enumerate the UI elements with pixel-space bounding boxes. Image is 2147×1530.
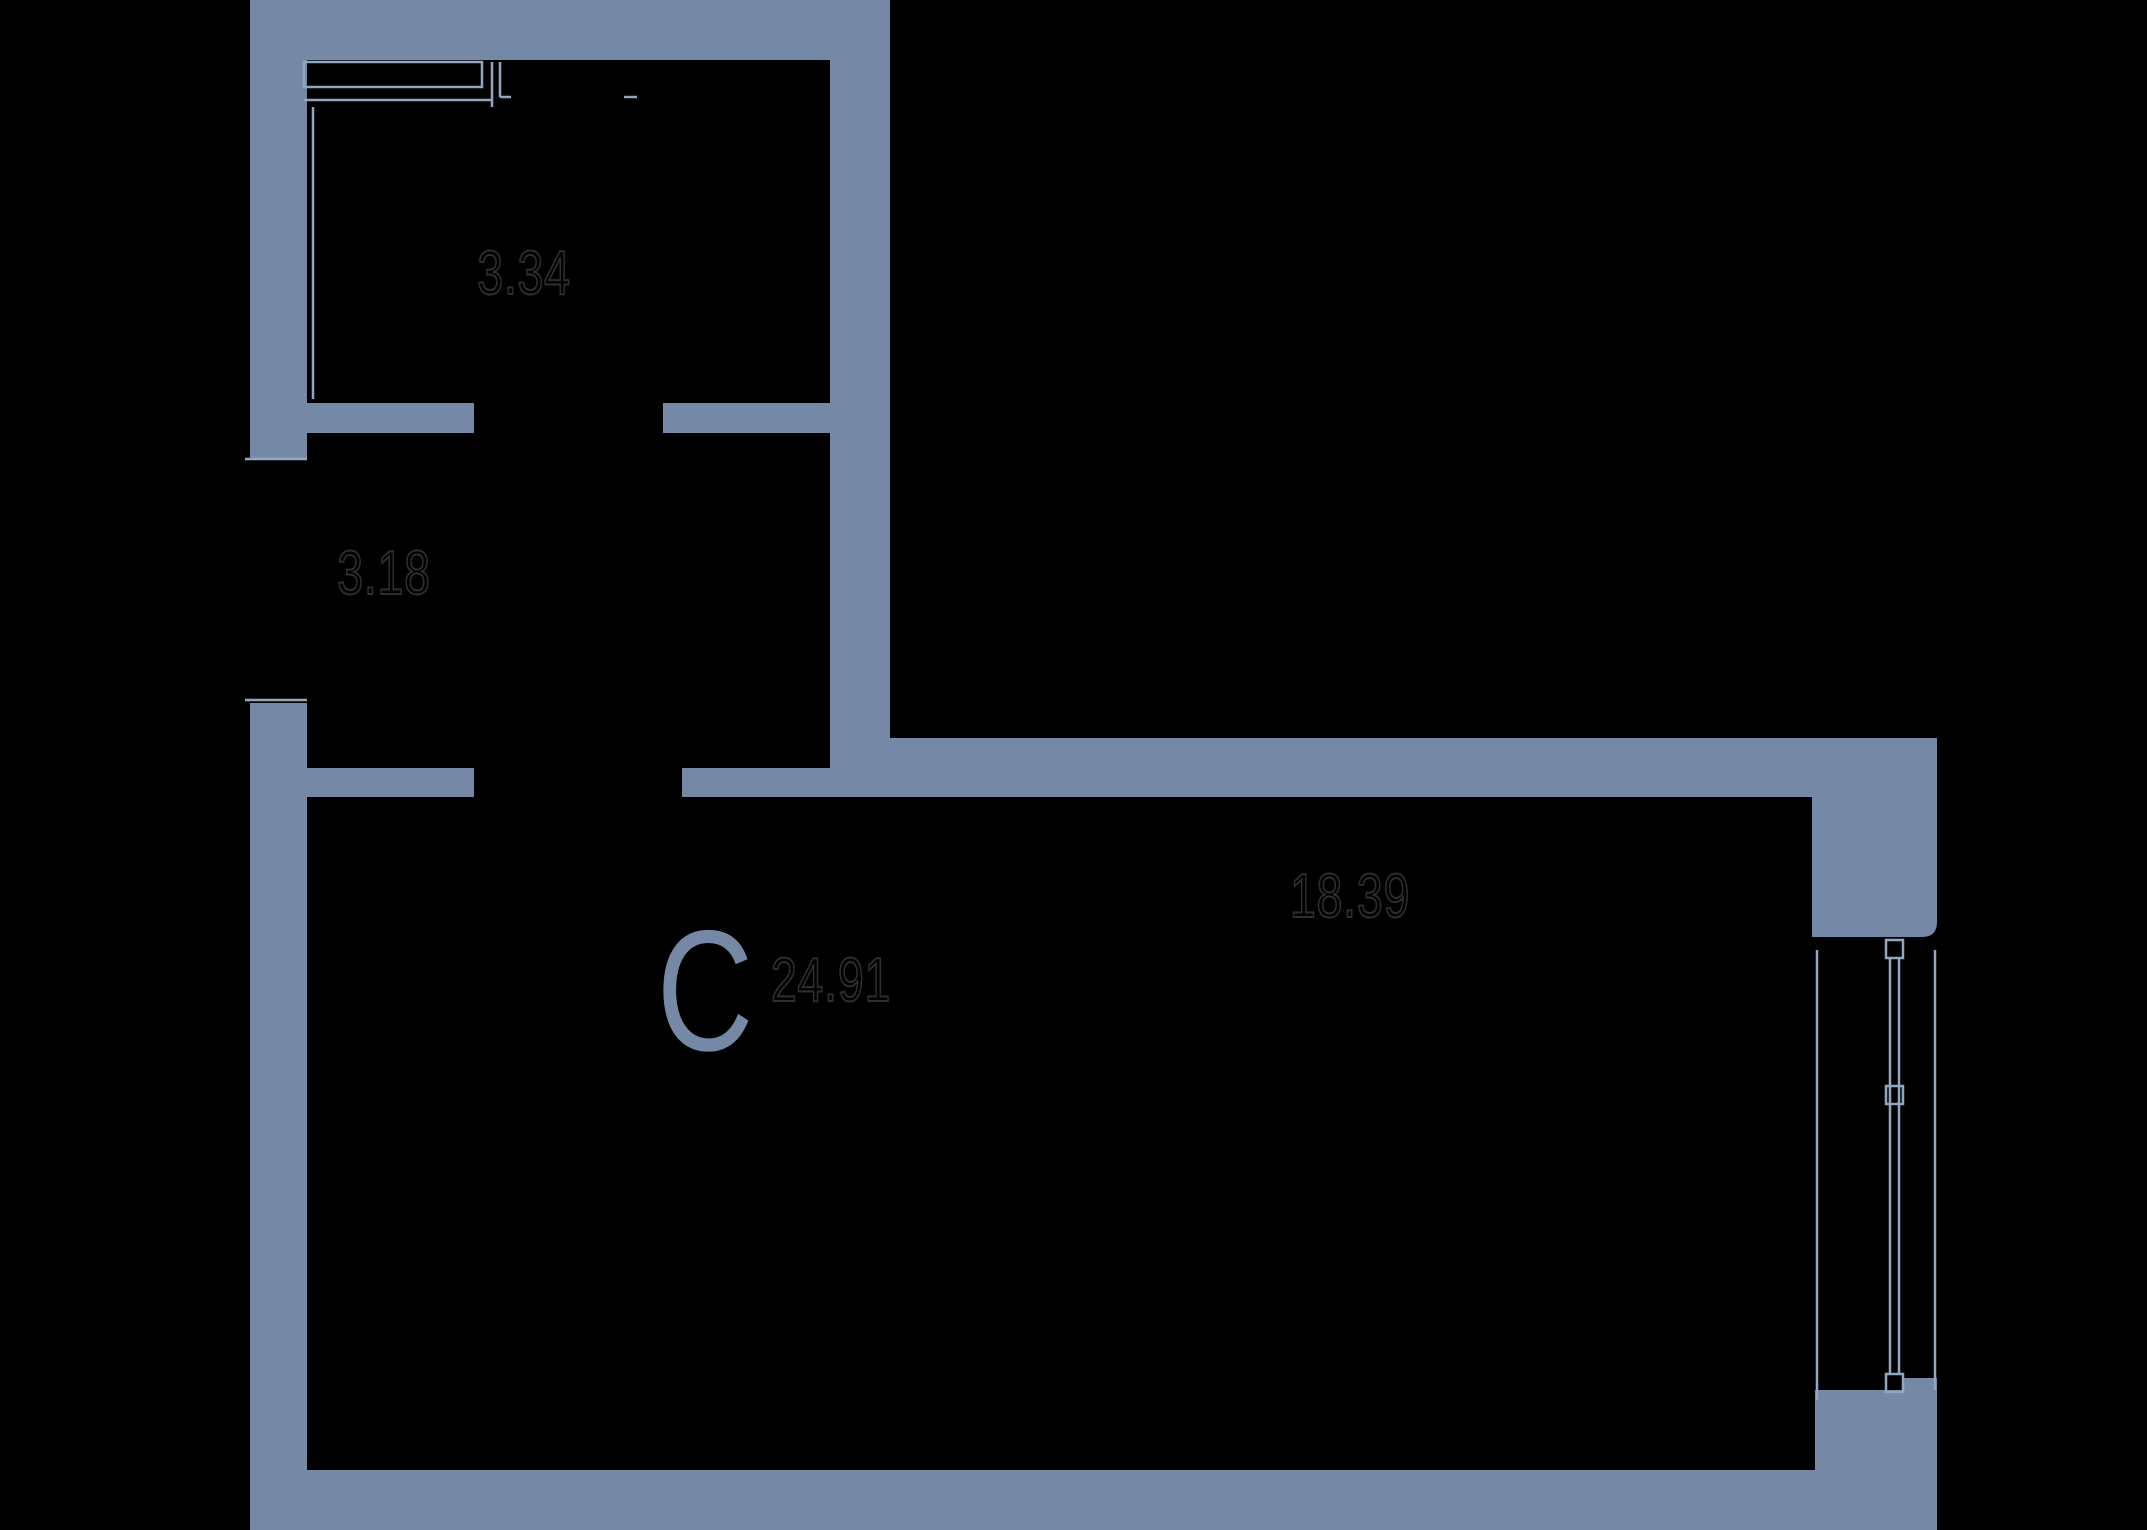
- partition-main-room-right-stub: [682, 768, 890, 797]
- right-window-sash-top: [1886, 940, 1903, 958]
- wall-window-pier-bottom: [1815, 1390, 1937, 1530]
- wall-window-pier-step: [1903, 1378, 1937, 1398]
- wall-window-pier-top: [1812, 797, 1937, 937]
- area-label-upper-room: 3.34: [477, 243, 571, 305]
- right-window-sash-bottom: [1886, 1374, 1903, 1392]
- floor-plan-drawing: [0, 0, 2147, 1530]
- floor-plan: 3.34 3.18 18.39 C 24.91: [0, 0, 2147, 1530]
- partition-main-room-left-stub: [307, 768, 474, 797]
- area-label-total: 24.91: [771, 950, 891, 1012]
- wall-upper-room-right: [830, 0, 890, 768]
- partition-upper-room-left-stub: [307, 403, 474, 433]
- wall-bottom: [250, 1470, 1815, 1530]
- wall-main-room-top: [890, 738, 1937, 797]
- wall-top: [250, 0, 890, 60]
- section-letter: C: [657, 905, 754, 1077]
- upper-window-frame: [304, 62, 482, 87]
- wall-left-upper: [250, 0, 307, 458]
- area-label-hallway: 3.18: [337, 543, 431, 605]
- wall-left-lower: [250, 703, 307, 1530]
- partition-upper-room-right-stub: [663, 403, 830, 433]
- area-label-main-room: 18.39: [1290, 866, 1410, 928]
- right-window-sash-middle: [1886, 1086, 1903, 1104]
